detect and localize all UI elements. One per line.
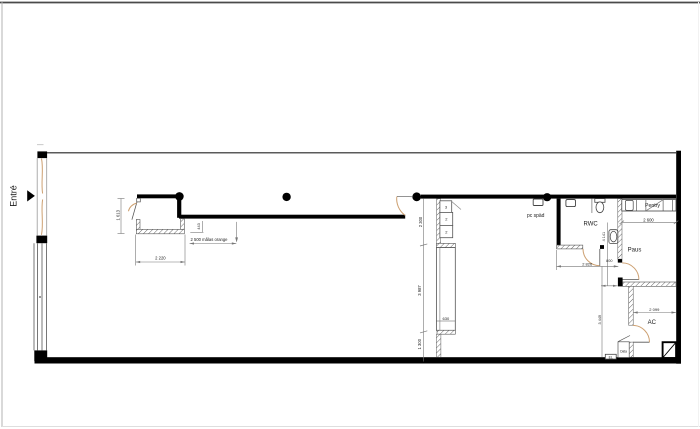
svg-text:3 449: 3 449 (598, 315, 602, 325)
svg-text:4 141: 4 141 (602, 232, 606, 242)
svg-text:2 099: 2 099 (649, 307, 660, 312)
svg-text:Paus: Paus (628, 248, 642, 254)
svg-text:RWC: RWC (583, 221, 598, 227)
svg-text:1 300: 1 300 (417, 338, 422, 349)
svg-text:Entré: Entré (9, 185, 19, 207)
svg-text:2 826: 2 826 (582, 262, 593, 267)
svg-text:EL: EL (609, 355, 613, 359)
svg-text:Data: Data (620, 349, 627, 353)
svg-text:2 500 målas orange: 2 500 målas orange (191, 237, 229, 242)
svg-text:2 600: 2 600 (643, 217, 654, 222)
svg-text:pc späd: pc späd (527, 213, 545, 219)
svg-text:2 220: 2 220 (155, 256, 166, 261)
svg-text:3 987: 3 987 (417, 285, 422, 296)
svg-text:2 300: 2 300 (418, 216, 423, 227)
svg-text:630: 630 (443, 316, 450, 321)
svg-text:443: 443 (197, 223, 201, 229)
svg-text:1 613: 1 613 (115, 209, 120, 220)
svg-text:Pentry: Pentry (645, 203, 660, 209)
svg-text:AC: AC (648, 320, 657, 326)
